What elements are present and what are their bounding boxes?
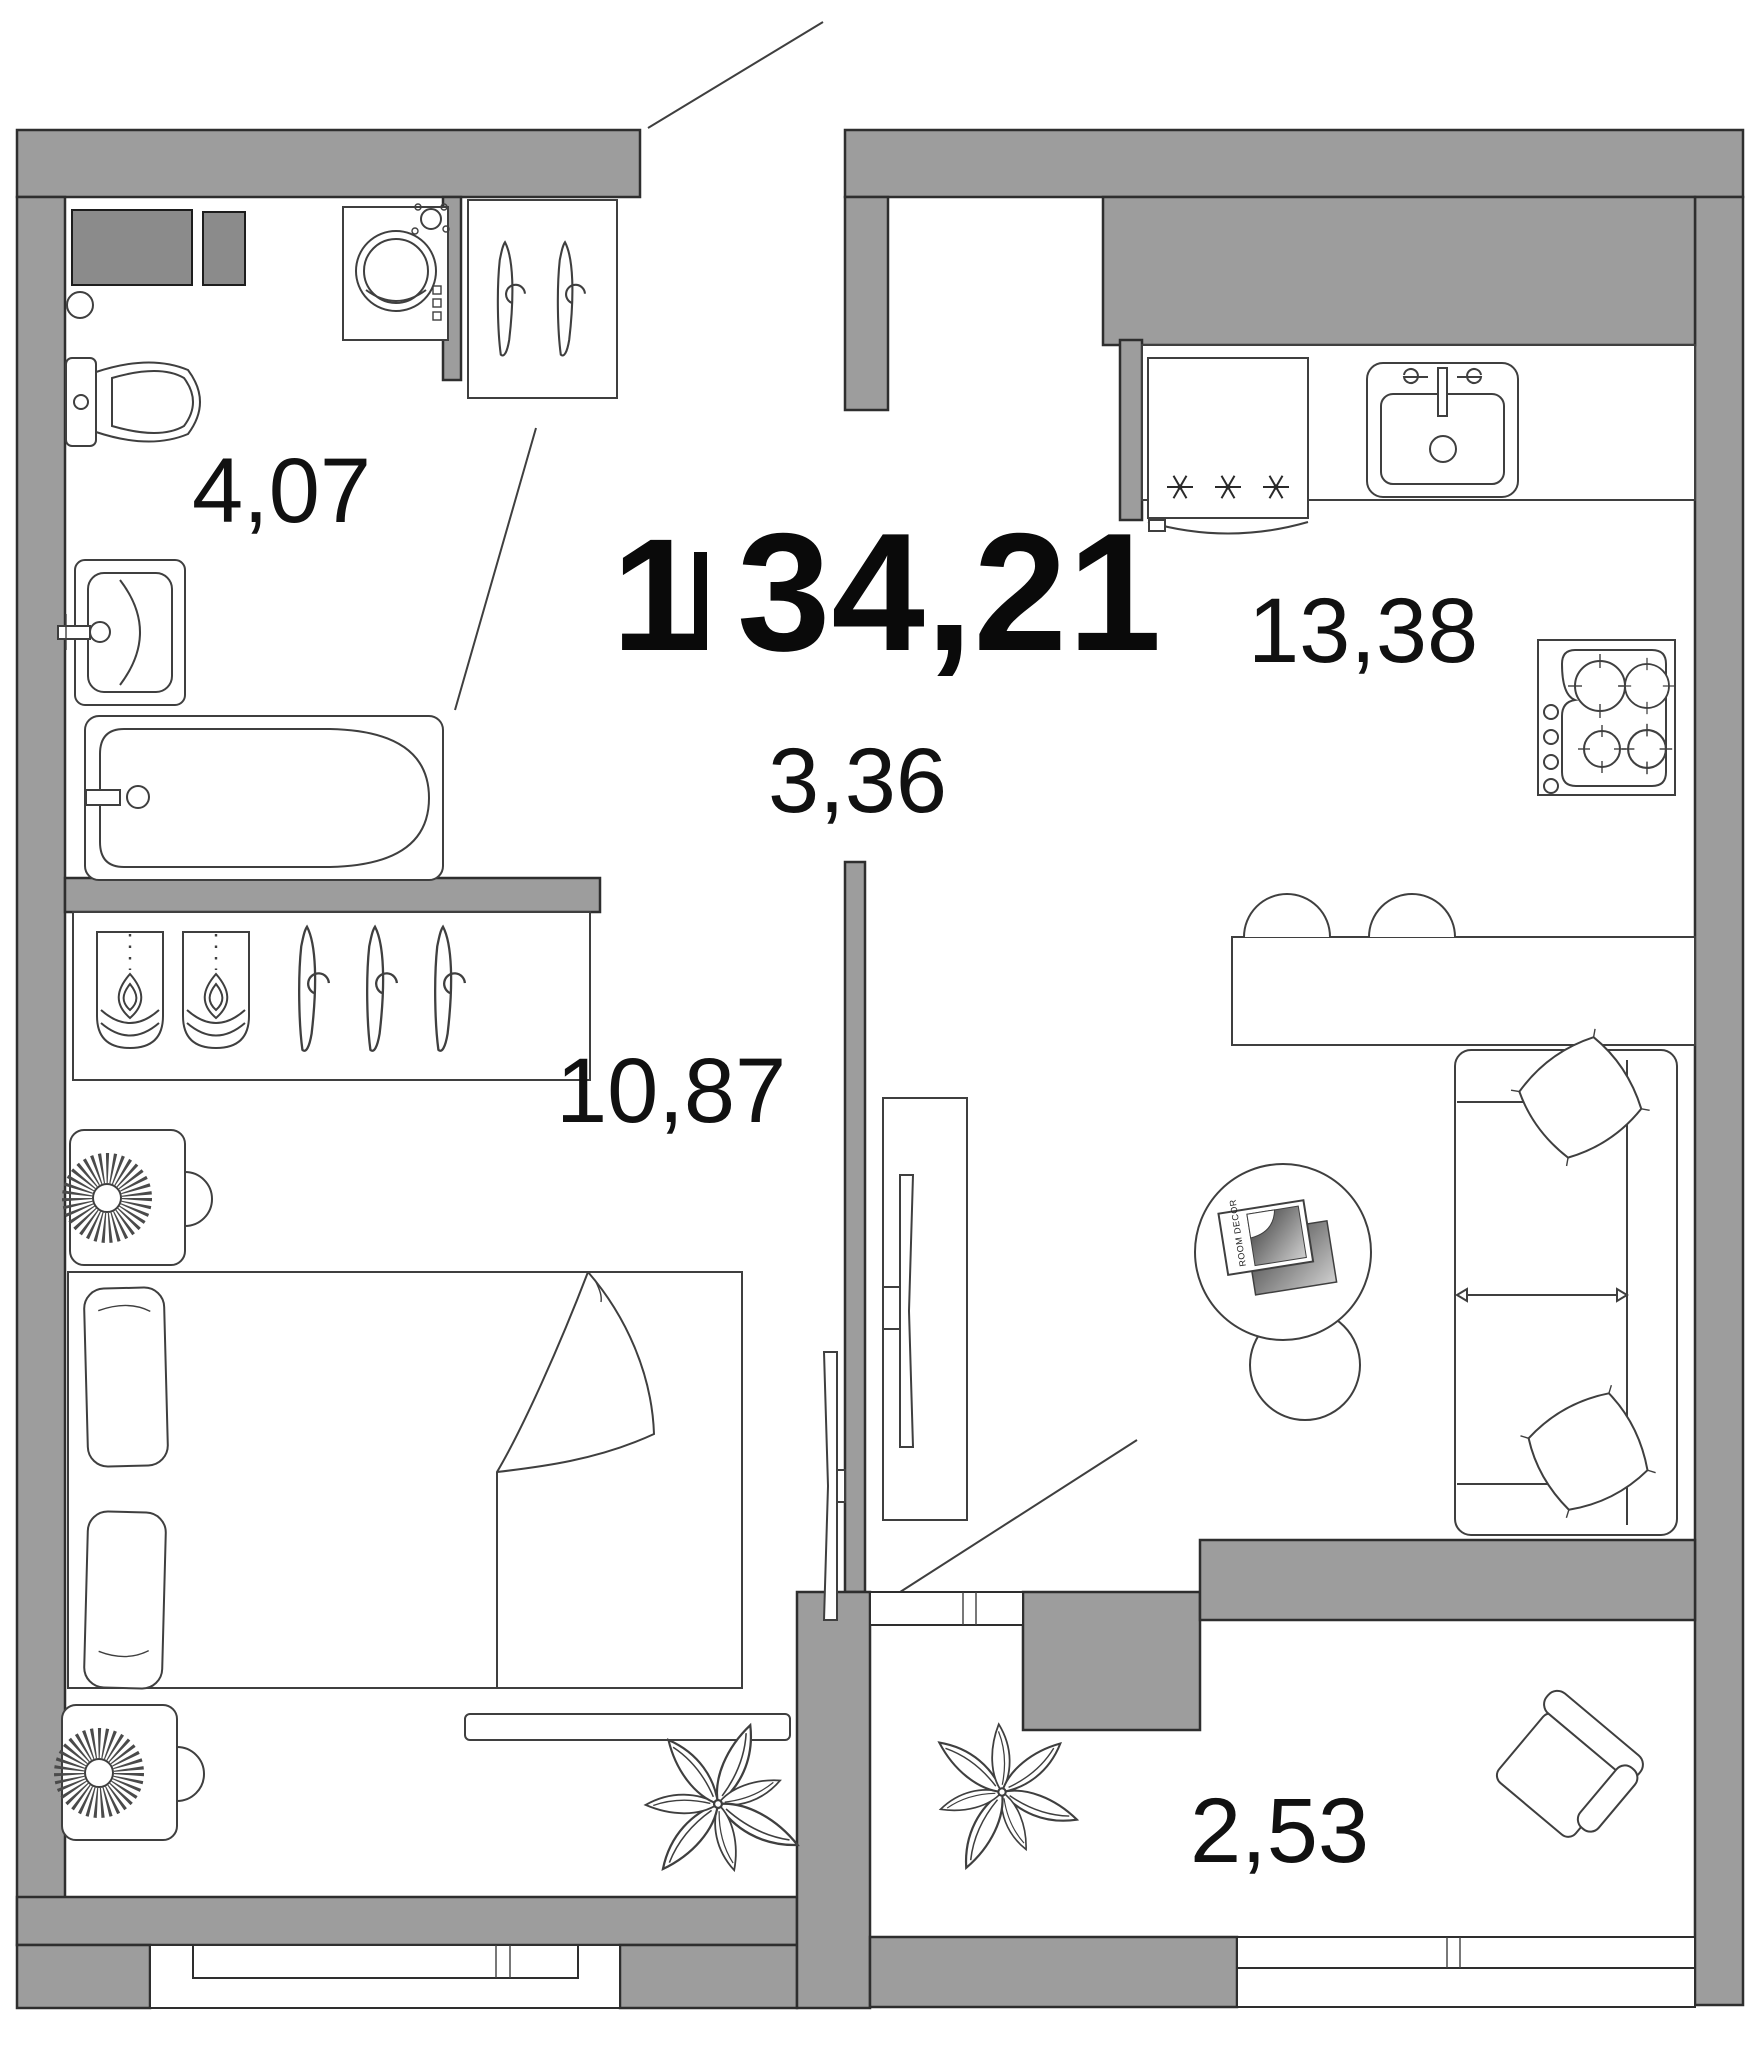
stove-icon (1538, 640, 1675, 795)
bathroom-door-leaf (455, 428, 536, 710)
bar-stool-icon (1244, 894, 1330, 937)
balcony-window (1237, 1937, 1695, 2007)
bathroom-area-label: 4,07 (192, 440, 371, 542)
rooms-count-label: 1 (612, 505, 701, 684)
room-bedroom: 10,87 (62, 912, 823, 1901)
sofa-icon (1455, 1028, 1677, 1535)
tv-bedroom-side (824, 1352, 845, 1620)
vent-shaft-icon (203, 212, 245, 285)
nightstand-icon (70, 1130, 212, 1265)
tv-bracket (883, 1287, 900, 1329)
hallway-area-label: 3,36 (768, 730, 947, 832)
bed-icon (68, 1272, 742, 1689)
balcony-door-threshold (870, 1592, 1023, 1625)
kitchen-living-area-label: 13,38 (1248, 580, 1478, 682)
balcony-area-label: 2,53 (1190, 1780, 1369, 1882)
total-area-label: 34,21 (737, 498, 1162, 686)
title-divider (694, 552, 707, 650)
toilet-icon (66, 358, 200, 446)
fridge-icon (1148, 358, 1308, 534)
bathtub-icon (85, 716, 443, 880)
bathroom-sink-icon (58, 560, 185, 705)
entrance-door-leaf (648, 22, 823, 128)
plan-title: 1 34,21 (612, 498, 1162, 686)
tv-bracket (837, 1470, 845, 1502)
plant-icon (913, 1712, 1093, 1889)
floor-plan: 4,07 3,36 (0, 0, 1763, 2048)
nightstand-icon (62, 1705, 204, 1840)
tv-bedroom-icon (824, 1352, 837, 1620)
floor-drain-icon (67, 292, 93, 318)
wardrobe-icon (73, 912, 590, 1080)
coffee-table-icon: ROOM DECOR (1195, 1164, 1371, 1420)
room-bathroom: 4,07 (58, 204, 449, 880)
coat-shelf-icon (468, 200, 617, 398)
bedroom-area-label: 10,87 (556, 1040, 786, 1142)
peninsula-counter (1232, 894, 1695, 1045)
vent-shaft-icon (72, 210, 192, 285)
washing-machine-icon (343, 204, 449, 340)
kitchen-sink-icon (1367, 363, 1518, 497)
bedroom-window (150, 1945, 620, 2008)
armchair-icon (1485, 1686, 1651, 1850)
tv-stand (883, 1098, 967, 1520)
bar-stool-icon (1369, 894, 1455, 937)
